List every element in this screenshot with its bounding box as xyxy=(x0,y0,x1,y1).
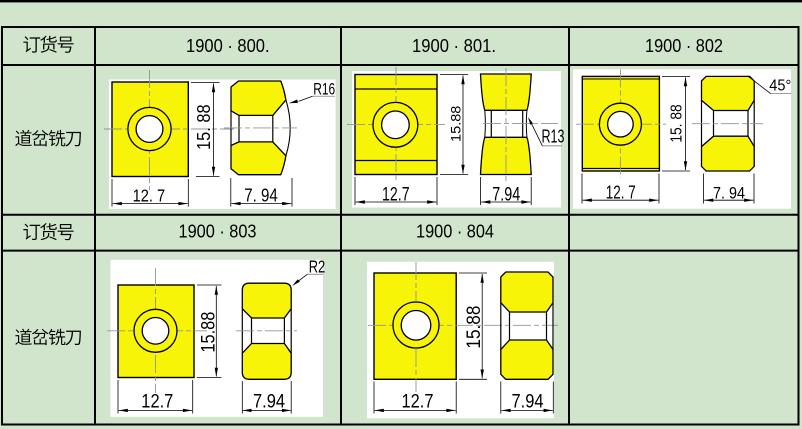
svg-text:R16: R16 xyxy=(313,80,335,98)
svg-text:7.94: 7.94 xyxy=(492,184,520,205)
svg-text:1900 · 802: 1900 · 802 xyxy=(645,36,723,56)
svg-text:15.88: 15.88 xyxy=(448,105,464,142)
svg-text:1900 · 803: 1900 · 803 xyxy=(179,222,257,242)
svg-text:7.94: 7.94 xyxy=(512,392,544,413)
svg-text:1900 · 804: 1900 · 804 xyxy=(416,222,494,242)
svg-text:12.7: 12.7 xyxy=(402,392,434,413)
svg-text:12.7: 12.7 xyxy=(141,392,173,413)
svg-text:15.88: 15.88 xyxy=(464,306,485,349)
svg-text:12.7: 12.7 xyxy=(382,183,410,205)
svg-text:R13: R13 xyxy=(542,126,565,146)
svg-text:7. 94: 7. 94 xyxy=(244,184,278,205)
svg-text:7.94: 7.94 xyxy=(253,392,285,413)
svg-text:12. 7: 12. 7 xyxy=(606,182,636,202)
svg-text:1900 · 801.: 1900 · 801. xyxy=(412,36,496,56)
svg-text:15.88: 15.88 xyxy=(199,312,220,353)
svg-text:45°: 45° xyxy=(769,78,791,95)
svg-text:1900 · 800.: 1900 · 800. xyxy=(186,36,270,56)
svg-text:12. 7: 12. 7 xyxy=(133,185,166,205)
svg-text:R2: R2 xyxy=(309,256,326,276)
svg-text:15. 88: 15. 88 xyxy=(194,104,214,150)
svg-text:15. 88: 15. 88 xyxy=(669,104,686,142)
svg-text:7. 94: 7. 94 xyxy=(713,183,745,202)
